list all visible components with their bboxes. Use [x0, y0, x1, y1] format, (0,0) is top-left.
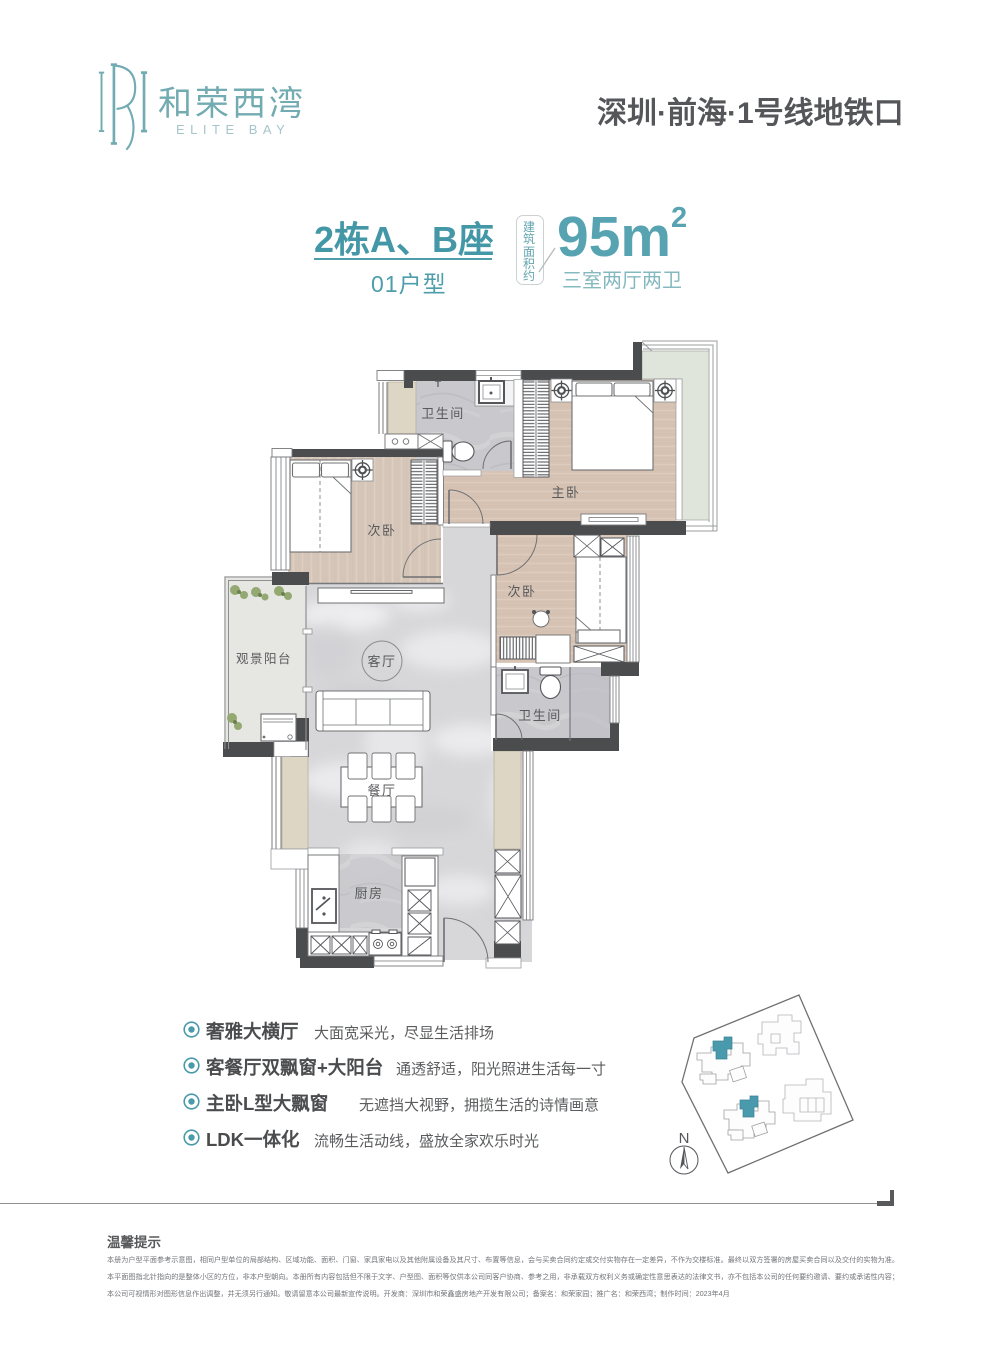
svg-text:N: N: [679, 1130, 690, 1147]
svg-text:厨房: 厨房: [354, 886, 383, 901]
svg-text:次卧: 次卧: [507, 584, 536, 599]
svg-text:观景阳台: 观景阳台: [236, 651, 292, 666]
svg-text:次卧: 次卧: [367, 523, 396, 538]
svg-text:卫生间: 卫生间: [421, 406, 465, 421]
svg-text:客厅: 客厅: [367, 654, 396, 669]
svg-text:餐厅: 餐厅: [367, 783, 396, 798]
svg-text:卫生间: 卫生间: [518, 708, 562, 723]
svg-text:主卧: 主卧: [551, 485, 580, 500]
